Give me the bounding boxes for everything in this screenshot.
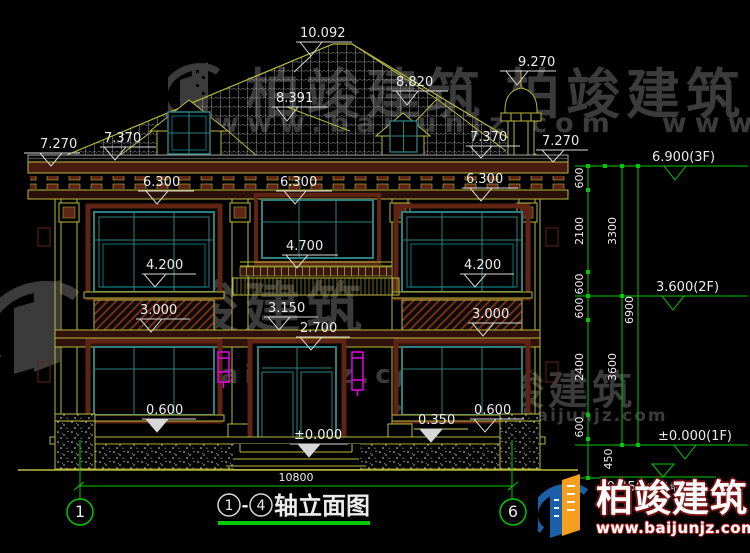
mark-label: 0.350 [418, 413, 455, 428]
level-label: 6.900(3F) [652, 150, 715, 165]
vdim-label: 600 [573, 168, 586, 189]
level-label: ±0.000(1F) [658, 429, 732, 444]
drawing-title: 1 - 4 轴立面图 [218, 492, 370, 525]
right-dimension-column: 600 2100 600 600 2400 600 450 3300 3600 … [573, 150, 748, 495]
axis-bubble-6: 6 [500, 499, 526, 525]
level-0.000-1F: ±0.000(1F) [652, 429, 748, 459]
mark-label: 7.370 [104, 131, 141, 146]
wall-lamp [352, 352, 363, 396]
mark-label: 6.300 [143, 175, 180, 190]
mark-label: 3.150 [268, 301, 305, 316]
mark-label: 4.200 [464, 258, 501, 273]
window-2f-right [392, 206, 532, 330]
brand-logo-icon [538, 468, 592, 548]
base-pier [500, 414, 540, 469]
mark-label: 8.391 [276, 91, 313, 106]
axis-number: 6 [508, 502, 518, 521]
wall-bracket [38, 228, 50, 246]
vdim-label: 3300 [606, 217, 619, 245]
title-text: 轴立面图 [274, 492, 370, 520]
level-label: 3.600(2F) [656, 280, 719, 295]
wall-bracket [546, 362, 558, 382]
mark-label: 0.600 [474, 403, 511, 418]
vdim-label: 450 [602, 449, 615, 470]
level-6.900-3F: 6.900(3F) [648, 150, 748, 180]
axis-bubble-1: 1 [67, 499, 93, 525]
vdim-label: 2100 [573, 217, 586, 245]
mark-label: ±0.000 [294, 428, 342, 443]
wall-bracket [546, 228, 558, 246]
mark-label: 6.300 [466, 172, 503, 187]
axis-number: 1 [75, 502, 85, 521]
level-3.600-2F: 3.600(2F) [652, 280, 748, 310]
mark-label: 9.270 [518, 55, 555, 70]
mark-label: 3.000 [472, 307, 509, 322]
vdim-label: 600 [573, 298, 586, 319]
vdim-label: 6900 [623, 296, 636, 324]
mark-label: 2.700 [300, 321, 337, 336]
mark-label: 6.300 [280, 175, 317, 190]
vdim-label: 2400 [573, 353, 586, 381]
overall-dim-label: 10800 [279, 471, 314, 484]
entry-steps [234, 444, 360, 469]
title-dash: - [241, 496, 248, 516]
title-axis-start: 1 [225, 498, 234, 514]
brand-url: www.baijunjz.com [596, 519, 750, 537]
mark-label: 8.820 [396, 75, 433, 90]
pilaster [57, 199, 81, 437]
mark-label: 4.700 [286, 239, 323, 254]
brand-logo: 柏竣建筑 www.baijunjz.com [538, 468, 750, 548]
wall-bracket [38, 362, 50, 382]
mark-label: 7.370 [470, 130, 507, 145]
title-axis-end: 4 [257, 498, 266, 514]
vdim-label: 600 [573, 417, 586, 438]
vdim-label: 3600 [606, 353, 619, 381]
mark-9.270: 9.270 [500, 55, 556, 85]
balcony-rail [240, 267, 392, 276]
mark-label: 7.270 [40, 137, 77, 152]
mark-label: 0.600 [146, 403, 183, 418]
title-underline [218, 521, 370, 525]
vdim-label: 600 [573, 274, 586, 295]
mark-label: 10.092 [300, 26, 346, 41]
base-pier [55, 414, 95, 469]
balcony-slab [233, 278, 399, 295]
mark-label: 3.000 [140, 303, 177, 318]
mark-label: 7.270 [542, 134, 579, 149]
brand-name: 柏竣建筑 [596, 479, 750, 520]
mark-label: 4.200 [146, 258, 183, 273]
